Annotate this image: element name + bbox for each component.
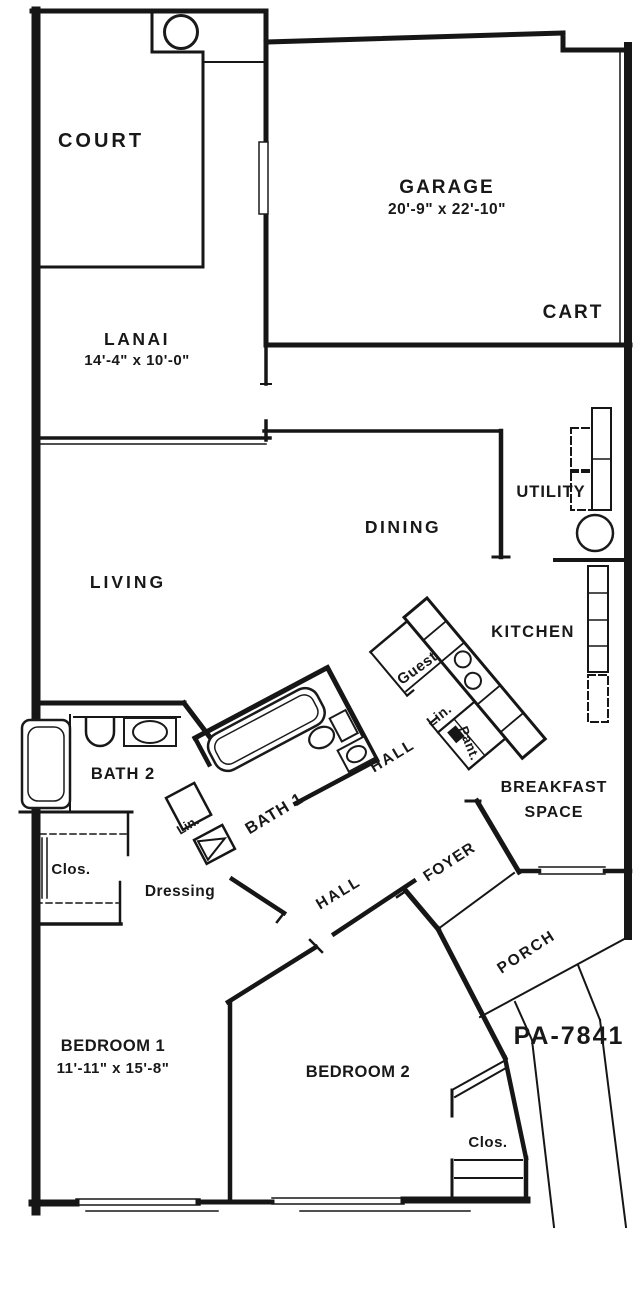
label-lanai-dims: 14'-4" x 10'-0" (84, 352, 190, 369)
label-garage-dims: 20'-9" x 22'-10" (388, 201, 506, 218)
label-bedroom1: BEDROOM 1 (61, 1037, 165, 1055)
label-lin-bath: Lin. (174, 813, 202, 838)
label-bath2: BATH 2 (91, 765, 155, 783)
court-planter-icon (165, 16, 198, 49)
label-breakfast-1: BREAKFAST (501, 779, 608, 796)
label-lanai: LANAI (104, 329, 170, 349)
label-dining: DINING (365, 517, 441, 537)
label-stamp: PA-7841 (514, 1022, 625, 1050)
label-bedroom2: BEDROOM 2 (306, 1063, 410, 1081)
label-breakfast-2: SPACE (525, 804, 584, 821)
floor-plan-page: COURTGARAGE20'-9" x 22'-10"CARTLANAI14'-… (0, 0, 640, 1294)
label-hall-lower: HALL (313, 873, 364, 913)
label-living: LIVING (90, 572, 166, 592)
court-lanai-walls (36, 11, 271, 444)
label-hall-upper: HALL (367, 736, 418, 776)
bedroom2-porch-walls (230, 929, 628, 1227)
bifold-closet (194, 825, 235, 864)
label-clos-left: Clos. (51, 861, 90, 878)
label-lin-kitchen: Lin. (423, 700, 454, 729)
utility-appliance-icon (571, 428, 592, 470)
label-bath1: BATH 1 (242, 789, 306, 838)
label-cart: CART (543, 302, 604, 323)
label-bedroom1-dims: 11'-11" x 15'-8" (57, 1060, 170, 1077)
label-garage: GARAGE (399, 177, 494, 198)
refrigerator-icon (588, 675, 608, 722)
bath2-walls (22, 703, 212, 810)
label-court: COURT (58, 130, 144, 152)
label-utility: UTILITY (516, 483, 585, 501)
label-kitchen: KITCHEN (491, 623, 575, 641)
room-labels: COURTGARAGE20'-9" x 22'-10"CARTLANAI14'-… (51, 130, 624, 1151)
label-foyer: FOYER (420, 839, 478, 885)
floor-plan-drawing: COURTGARAGE20'-9" x 22'-10"CARTLANAI14'-… (0, 0, 640, 1294)
water-heater-icon (577, 515, 613, 551)
label-dressing: Dressing (145, 883, 215, 900)
label-clos-bed2: Clos. (468, 1134, 507, 1151)
garage-side-door (259, 142, 268, 214)
toilet-icon (86, 718, 114, 746)
label-porch: PORCH (494, 927, 559, 977)
